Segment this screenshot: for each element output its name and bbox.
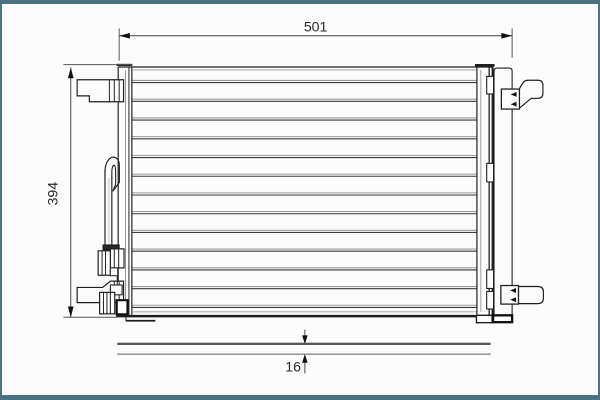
dimension-depth-label: 16 <box>285 360 301 376</box>
dimension-height: 394 <box>46 65 132 318</box>
dimension-width: 501 <box>119 19 512 60</box>
dimension-width-label: 501 <box>304 19 328 35</box>
bottom-end-caps <box>476 315 512 322</box>
dimension-depth: 16 <box>285 330 307 376</box>
refrigerant-pipe <box>103 157 119 250</box>
mounting-bracket-top-left <box>77 80 123 102</box>
mounting-bracket-bottom-right <box>501 286 544 305</box>
technical-drawing-canvas: 501 394 16 <box>2 4 598 395</box>
pipe-fitting-upper <box>98 249 124 285</box>
drawing-frame: 501 394 16 <box>0 0 600 400</box>
dimension-height-label: 394 <box>46 182 62 206</box>
condenser-side-view <box>117 342 490 354</box>
left-tank <box>117 65 133 315</box>
condenser-front-view <box>77 65 543 323</box>
condenser-tubes <box>132 80 477 307</box>
